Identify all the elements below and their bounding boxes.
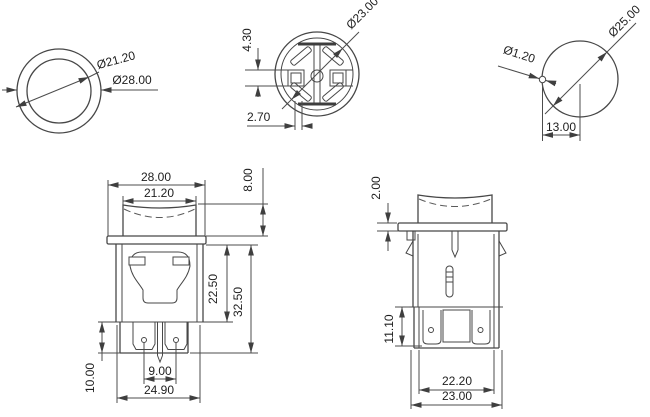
bezel-front-view: Ø28.00 Ø21.20 [2, 48, 158, 133]
switch-technical-drawing: Ø28.00 Ø21.20 [0, 0, 650, 417]
terminal-pin-right [472, 310, 490, 344]
terminal-hole-left [142, 338, 147, 343]
bell-window-right [173, 257, 189, 265]
cap-dashed-curve-side [419, 199, 491, 207]
dim-cap-height: 8.00 [198, 168, 268, 236]
dim-label-offset: 13.00 [546, 120, 576, 134]
pin-hole-left [429, 328, 434, 333]
dim-label-flange-t: 2.00 [369, 176, 383, 200]
terminal-housing-side [414, 307, 499, 348]
terminal-housing [120, 322, 188, 362]
front-elevation-view: 28.00 21.20 8.00 22.50 32.50 [83, 168, 268, 403]
center-hole [311, 70, 323, 82]
dim-label-body-h: 22.50 [206, 274, 220, 304]
dim-bezel-outer-diameter: Ø28.00 [2, 73, 158, 90]
dim-label-terminal-h-side: 11.10 [382, 314, 396, 343]
dim-terminal-height-side: 11.10 [382, 307, 422, 346]
terminal-pin-left [423, 310, 441, 344]
notch-hole [539, 76, 545, 82]
technical-drawing-page: Ø28.00 Ø21.20 [0, 0, 650, 417]
button-cap-side [418, 195, 492, 223]
dim-label-bottom-dia: Ø23.00 [343, 0, 381, 32]
dim-label-bezel-outer: Ø28.00 [112, 73, 152, 87]
dim-label-notch-dia: Ø1.20 [502, 42, 538, 66]
flange-tab [407, 231, 415, 240]
dim-label-bottom-w: 24.90 [144, 383, 174, 397]
dim-label-terminal-h: 4.30 [240, 28, 254, 52]
center-rib-side [452, 231, 458, 257]
dim-label-housing-h: 10.00 [83, 363, 97, 393]
pin-hole-right [478, 328, 483, 333]
panel-cutout-view: Ø25.00 Ø1.20 13.00 [498, 2, 643, 141]
mounting-flange-side [398, 223, 507, 231]
dim-cap-width: 21.20 [123, 186, 196, 206]
dim-housing-width: 22.20 [419, 350, 494, 394]
dim-label-housing-w: 22.20 [442, 374, 472, 388]
dim-label-cap-w: 21.20 [144, 186, 174, 200]
snap-barb-right [499, 241, 506, 256]
bezel-outer-circle [17, 49, 101, 133]
bottom-view: Ø23.00 4.30 2.70 [240, 0, 381, 130]
dim-rib-width: 2.70 [247, 101, 312, 130]
dim-label-rib-w: 2.70 [247, 110, 271, 124]
dim-notch-diameter: Ø1.20 [498, 42, 556, 83]
center-block [443, 310, 470, 342]
button-cap [123, 205, 196, 236]
dim-terminal-height: 4.30 [240, 28, 289, 97]
bell-window-left [129, 257, 145, 265]
dim-label-cap-h: 8.00 [241, 168, 255, 192]
mounting-flange [107, 236, 206, 244]
body-walls [116, 244, 203, 322]
latch-capsule-detail [446, 266, 453, 297]
side-elevation-view: 2.00 11.10 22.20 23.00 [369, 176, 507, 409]
dim-label-body-w: 23.00 [442, 389, 472, 403]
dim-label-total-h: 32.50 [231, 287, 245, 317]
snap-barb-left [406, 241, 413, 256]
body-walls-side [413, 231, 499, 307]
terminal-hole-right [174, 338, 179, 343]
dim-flange-thickness: 2.00 [369, 176, 406, 251]
dim-label-pin-pitch: 9.00 [148, 364, 172, 378]
dim-label-flange-w: 28.00 [141, 170, 171, 184]
dim-housing-height: 10.00 [83, 322, 120, 393]
cap-dashed-curve [124, 209, 195, 218]
dim-label-bezel-inner: Ø21.20 [95, 48, 137, 72]
dim-cutout-diameter: Ø25.00 [545, 2, 643, 114]
bezel-inner-circle [27, 59, 91, 123]
